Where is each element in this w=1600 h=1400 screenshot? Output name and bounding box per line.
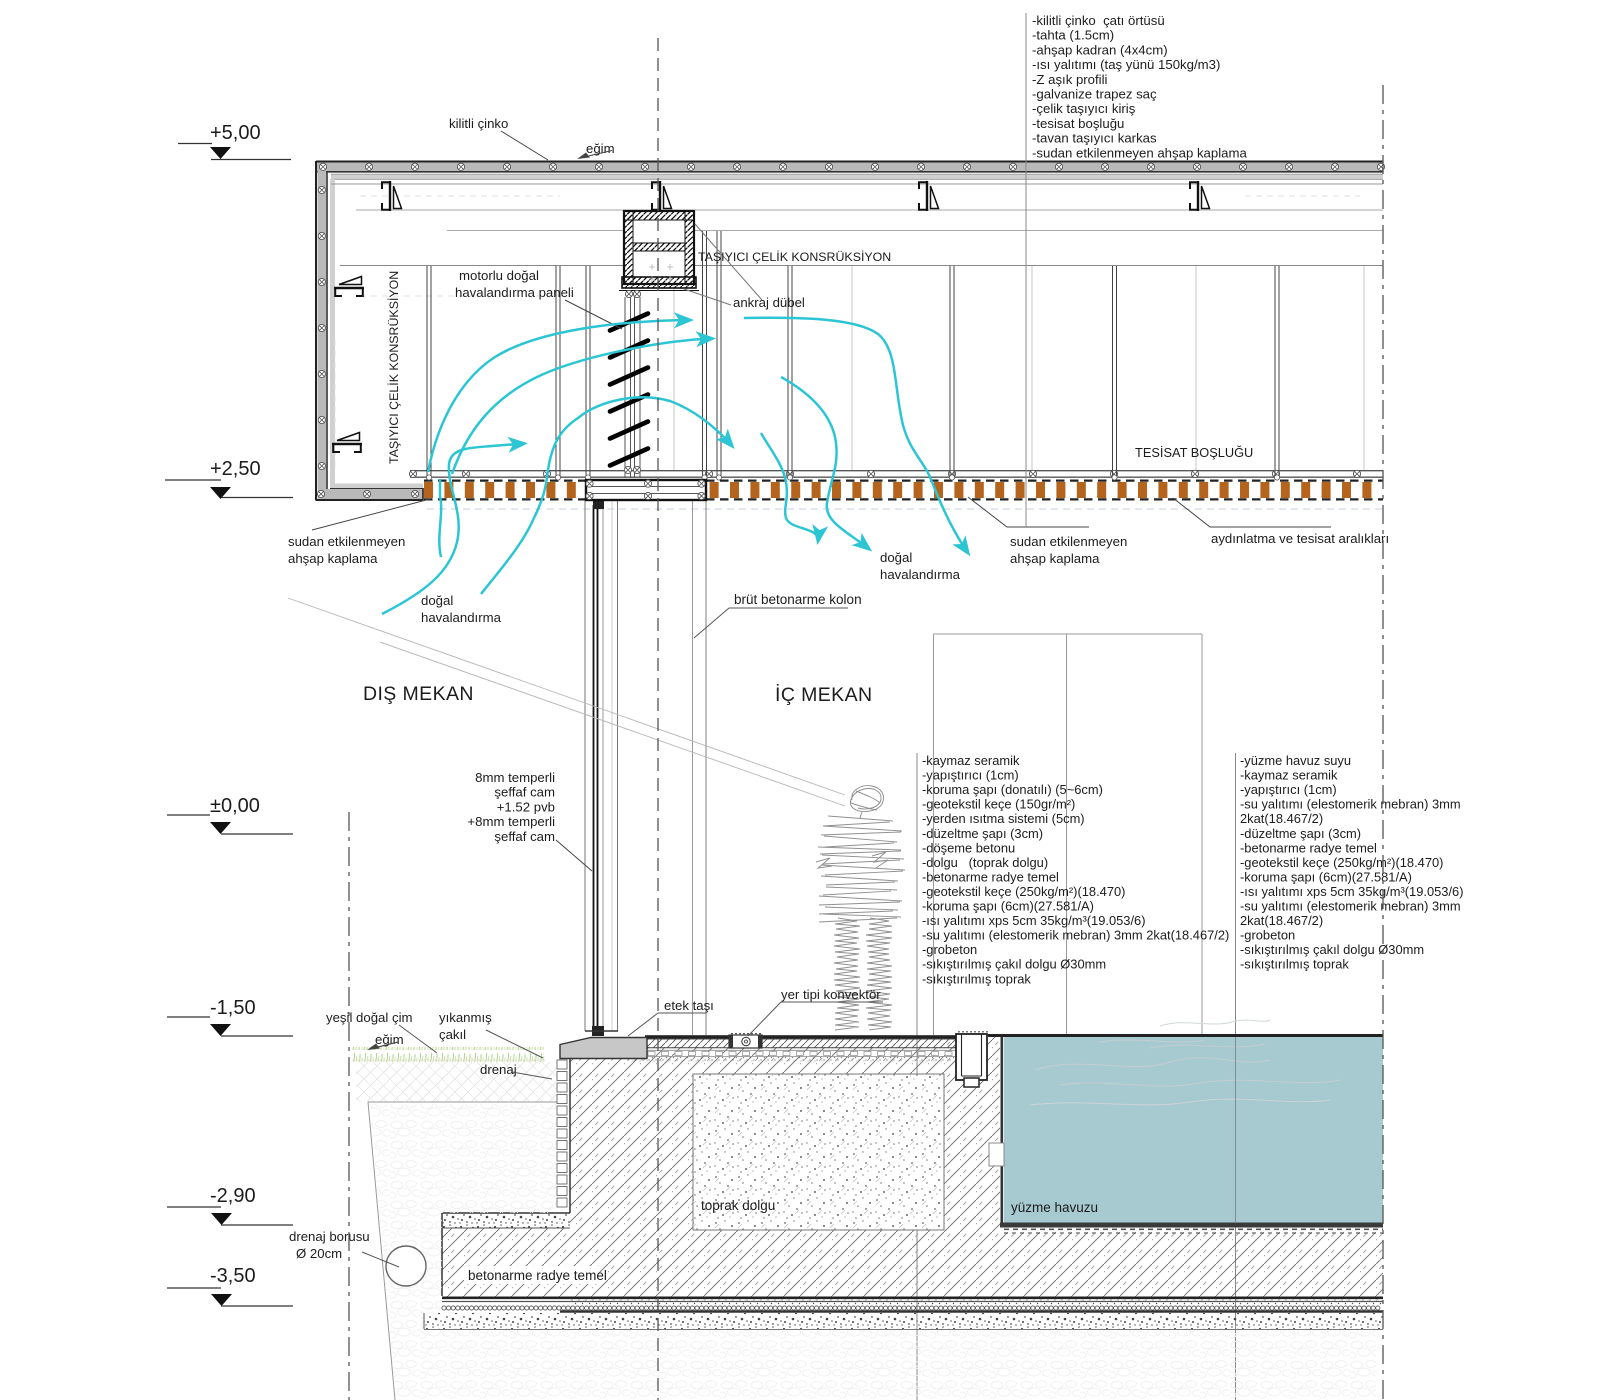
svg-text:-yüzme havuz suyu: -yüzme havuz suyu	[1240, 753, 1351, 768]
svg-text:-çelik taşıyıcı kiriş: -çelik taşıyıcı kiriş	[1032, 101, 1136, 116]
svg-text:+5,00: +5,00	[210, 122, 261, 144]
svg-text:TAŞIYICI ÇELİK KONSRÜKSİYON: TAŞIYICI ÇELİK KONSRÜKSİYON	[387, 271, 401, 464]
svg-text:-tesisat boşluğu: -tesisat boşluğu	[1032, 116, 1124, 131]
svg-text:doğal: doğal	[880, 550, 912, 565]
svg-text:-koruma şapı (donatılı) (5~6cm: -koruma şapı (donatılı) (5~6cm)	[922, 782, 1103, 797]
svg-text:-sıkıştırılmış toprak: -sıkıştırılmış toprak	[922, 971, 1031, 986]
svg-text:-geotekstil keçe (250kg/m²)(18: -geotekstil keçe (250kg/m²)(18.470)	[922, 884, 1125, 899]
svg-text:-kaymaz seramik: -kaymaz seramik	[1240, 768, 1338, 783]
svg-text:havalandırma: havalandırma	[421, 610, 502, 625]
svg-text:-kaymaz seramik: -kaymaz seramik	[922, 753, 1020, 768]
svg-text:+8mm temperli: +8mm temperli	[467, 814, 555, 829]
svg-text:-düzeltme şapı (3cm): -düzeltme şapı (3cm)	[922, 826, 1043, 841]
svg-text:eğim: eğim	[375, 1032, 404, 1047]
svg-text:+2,50: +2,50	[210, 458, 261, 480]
svg-text:-su yalıtımı (elestomerik mebr: -su yalıtımı (elestomerik mebran) 3mm 2k…	[922, 928, 1229, 943]
svg-text:brüt betonarme kolon: brüt betonarme kolon	[734, 592, 862, 607]
svg-text:-ahşap kadran (4x4cm): -ahşap kadran (4x4cm)	[1032, 42, 1168, 57]
svg-text:-2,90: -2,90	[210, 1185, 256, 1207]
svg-text:TESİSAT BOŞLUĞU: TESİSAT BOŞLUĞU	[1135, 445, 1253, 460]
svg-text:ahşap kaplama: ahşap kaplama	[1010, 551, 1100, 566]
svg-text:-galvanize trapez saç: -galvanize trapez saç	[1032, 87, 1157, 102]
svg-text:sudan etkilenmeyen: sudan etkilenmeyen	[1010, 534, 1127, 549]
svg-text:-sıkıştırılmış çakıl dolgu Ø30: -sıkıştırılmış çakıl dolgu Ø30mm	[922, 957, 1106, 972]
svg-text:drenaj: drenaj	[480, 1062, 517, 1077]
svg-text:-betonarme radye temel: -betonarme radye temel	[922, 869, 1059, 884]
svg-text:yüzme havuzu: yüzme havuzu	[1011, 1200, 1098, 1215]
svg-text:Ø 20cm: Ø 20cm	[296, 1246, 342, 1261]
svg-text:-betonarme radye temel: -betonarme radye temel	[1240, 840, 1377, 855]
svg-text:-ısı yalıtımı (taş yünü 150kg/: -ısı yalıtımı (taş yünü 150kg/m3)	[1032, 57, 1220, 72]
svg-text:-ısı yalıtımı xps 5cm 35kg/m³(: -ısı yalıtımı xps 5cm 35kg/m³(19.053/6)	[922, 913, 1146, 928]
svg-text:-su yalıtımı (elestomerik mebr: -su yalıtımı (elestomerik mebran) 3mm	[1240, 899, 1461, 914]
svg-text:doğal: doğal	[421, 593, 453, 608]
svg-text:-grobeton: -grobeton	[1240, 928, 1295, 943]
svg-text:şeffaf cam: şeffaf cam	[494, 829, 555, 844]
svg-text:ankraj dübel: ankraj dübel	[733, 295, 805, 310]
svg-text:sudan etkilenmeyen: sudan etkilenmeyen	[288, 534, 405, 549]
svg-text:çakıl: çakıl	[439, 1027, 466, 1042]
svg-text:İÇ MEKAN: İÇ MEKAN	[775, 683, 872, 706]
svg-text:-geotekstil keçe (150gr/m²): -geotekstil keçe (150gr/m²)	[922, 797, 1075, 812]
svg-text:-koruma şapı (6cm)(27.581/A): -koruma şapı (6cm)(27.581/A)	[922, 899, 1094, 914]
svg-text:2kat(18.467/2): 2kat(18.467/2)	[1240, 913, 1323, 928]
svg-text:betonarme radye temel: betonarme radye temel	[468, 1268, 607, 1283]
svg-text:-sıkıştırılmış çakıl dolgu Ø30: -sıkıştırılmış çakıl dolgu Ø30mm	[1240, 942, 1424, 957]
svg-text:aydınlatma ve tesisat aralıkla: aydınlatma ve tesisat aralıkları	[1211, 531, 1389, 546]
svg-text:-grobeton: -grobeton	[922, 942, 977, 957]
svg-text:-döşeme betonu: -döşeme betonu	[922, 840, 1015, 855]
svg-text:yer tipi konvektör: yer tipi konvektör	[781, 987, 881, 1002]
svg-text:toprak dolgu: toprak dolgu	[701, 1198, 775, 1213]
svg-text:havalandırma paneli: havalandırma paneli	[455, 285, 574, 300]
svg-text:±0,00: ±0,00	[210, 795, 260, 817]
svg-text:-ısı yalıtımı xps 5cm 35kg/m³(: -ısı yalıtımı xps 5cm 35kg/m³(19.053/6)	[1240, 884, 1464, 899]
svg-text:-3,50: -3,50	[210, 1265, 256, 1287]
svg-text:yıkanmış: yıkanmış	[439, 1010, 492, 1025]
svg-text:şeffaf cam: şeffaf cam	[494, 785, 555, 800]
svg-text:-kilitli çinko çatı örtüsü: -kilitli çinko çatı örtüsü	[1032, 13, 1165, 28]
svg-text:-sıkıştırılmış toprak: -sıkıştırılmış toprak	[1240, 957, 1349, 972]
svg-text:etek taşı: etek taşı	[664, 998, 714, 1013]
svg-text:-dolgu (toprak dolgu): -dolgu (toprak dolgu)	[922, 855, 1048, 870]
svg-text:-yerden ısıtma sistemi (5cm): -yerden ısıtma sistemi (5cm)	[922, 811, 1085, 826]
svg-text:yeşil doğal çim: yeşil doğal çim	[326, 1010, 413, 1025]
svg-text:drenaj borusu: drenaj borusu	[289, 1229, 370, 1244]
svg-text:motorlu doğal: motorlu doğal	[459, 268, 539, 283]
svg-text:kilitli çinko: kilitli çinko	[449, 116, 508, 131]
svg-text:ahşap kaplama: ahşap kaplama	[288, 551, 378, 566]
svg-text:-sudan etkilenmeyen ahşap kapl: -sudan etkilenmeyen ahşap kaplama	[1032, 145, 1247, 160]
svg-text:-tavan taşıyıcı karkas: -tavan taşıyıcı karkas	[1032, 131, 1157, 146]
svg-text:TAŞIYICI ÇELİK KONSRÜKSİYON: TAŞIYICI ÇELİK KONSRÜKSİYON	[698, 250, 891, 264]
svg-text:havalandırma: havalandırma	[880, 567, 961, 582]
svg-text:-tahta (1.5cm): -tahta (1.5cm)	[1032, 28, 1114, 43]
svg-text:-su yalıtımı (elestomerik mebr: -su yalıtımı (elestomerik mebran) 3mm	[1240, 797, 1461, 812]
svg-text:-1,50: -1,50	[210, 997, 256, 1019]
svg-text:-yapıştırıcı (1cm): -yapıştırıcı (1cm)	[922, 768, 1019, 783]
svg-text:-koruma şapı (6cm)(27.581/A): -koruma şapı (6cm)(27.581/A)	[1240, 869, 1412, 884]
svg-text:-Z aşık profili: -Z aşık profili	[1032, 72, 1108, 87]
svg-text:-geotekstil keçe (250kg/m²)(18: -geotekstil keçe (250kg/m²)(18.470)	[1240, 855, 1443, 870]
svg-text:+1.52 pvb: +1.52 pvb	[497, 799, 555, 814]
svg-text:-yapıştırıcı (1cm): -yapıştırıcı (1cm)	[1240, 782, 1337, 797]
svg-text:-düzeltme şapı (3cm): -düzeltme şapı (3cm)	[1240, 826, 1361, 841]
svg-text:2kat(18.467/2): 2kat(18.467/2)	[1240, 811, 1323, 826]
svg-text:DIŞ MEKAN: DIŞ MEKAN	[363, 683, 474, 705]
svg-text:8mm temperli: 8mm temperli	[475, 770, 555, 785]
